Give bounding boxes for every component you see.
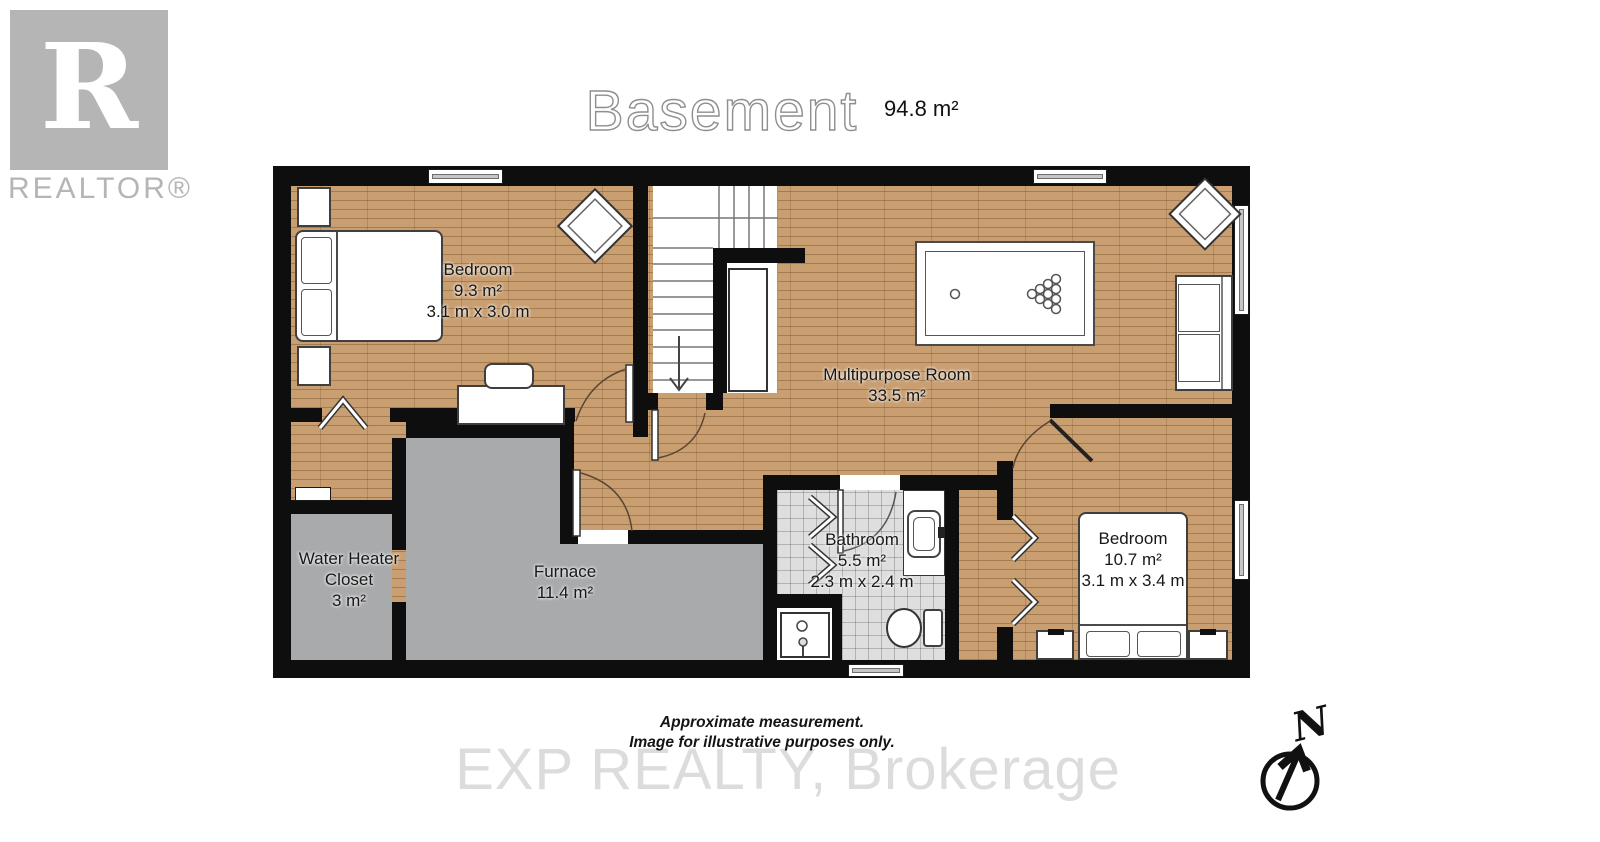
window-glass [1239,504,1244,576]
wall [648,393,658,410]
window-glass [1239,209,1244,311]
room-name: Furnace [534,561,596,582]
understair-storage [728,268,768,392]
total-area: 94.8 m² [884,96,959,122]
realtor-logo-letter: R [40,28,138,146]
room-dimensions: 3.1 m x 3.0 m [427,301,530,322]
page-title: Basement [586,78,859,144]
wall [1050,404,1232,418]
room-dimensions: 2.3 m x 2.4 m [811,571,914,592]
wall [633,186,648,437]
compass: N [1238,698,1348,828]
window [1234,205,1249,315]
wall [291,408,322,422]
wall [945,490,959,662]
room-area: 3 m² [299,590,399,611]
realtor-logo-label: REALTOR® [8,172,198,206]
disclaimer-line-2: Image for illustrative purposes only. [629,734,895,752]
window-glass [432,174,499,179]
room-bedroom-1: Bedroom 9.3 m² 3.1 m x 3.0 m [427,259,530,322]
sofa-cushion [1178,334,1220,382]
faucet [938,527,945,538]
room-multipurpose: Multipurpose Room 33.5 m² [823,364,970,406]
wall [763,475,840,490]
room-area: 9.3 m² [427,280,530,301]
window [295,487,331,501]
sink-basin [913,517,935,551]
room-area: 5.5 m² [811,550,914,571]
pillow [301,237,332,284]
laundry-tub [780,612,830,658]
window [1033,169,1107,184]
sofa-cushion [1178,284,1220,332]
room-name: Water Heater [299,548,399,569]
room-name: Multipurpose Room [823,364,970,385]
disclaimer-line-1: Approximate measurement. [660,714,864,732]
nightstand-handle [1200,629,1216,635]
nightstand [297,187,331,227]
wall [392,602,406,662]
pillow [1086,631,1130,657]
window [1234,500,1249,580]
realtor-logo: R [10,10,168,170]
wall [763,475,777,662]
bed-headboard [336,232,338,340]
room-name: Bedroom [427,259,530,280]
floor-plan-page: R REALTOR® Basement 94.8 m² [0,0,1600,842]
pool-table-felt [925,251,1085,336]
wall [832,594,842,662]
wall [291,500,392,514]
nightstand [297,346,331,386]
room-area: 33.5 m² [823,385,970,406]
wall [560,422,574,544]
room-name: Bedroom [1082,528,1185,549]
compass-north-label: N [1285,696,1335,751]
wall [997,461,1013,520]
room-bathroom: Bathroom 5.5 m² 2.3 m x 2.4 m [811,529,914,592]
nightstand-handle [1048,629,1064,635]
window [428,169,503,184]
wall [560,530,578,544]
room-area: 10.7 m² [1082,549,1185,570]
desk [457,385,565,425]
pillow [1137,631,1181,657]
window [848,664,904,677]
wall [713,248,727,393]
pillow [301,289,332,336]
window-glass [1037,174,1103,179]
wall [273,166,291,678]
room-furnace: Furnace 11.4 m² [534,561,596,603]
window-glass [852,668,900,673]
wall [706,393,723,410]
room-name: Bathroom [811,529,914,550]
room-dimensions: 3.1 m x 3.4 m [1082,570,1185,591]
wall [777,594,832,608]
desk-chair [484,363,534,389]
room-water-heater-closet: Water Heater Closet 3 m² [299,548,399,611]
furnace-room-floor [406,438,560,662]
wall [392,438,406,550]
wall [900,475,997,490]
wall [997,627,1013,660]
toilet-tank [923,609,943,647]
room-name: Closet [299,569,399,590]
room-bedroom-2: Bedroom 10.7 m² 3.1 m x 3.4 m [1082,528,1185,591]
wall [628,530,777,544]
bed-footline [1080,624,1186,626]
wall [273,660,1250,678]
room-area: 11.4 m² [534,582,596,603]
